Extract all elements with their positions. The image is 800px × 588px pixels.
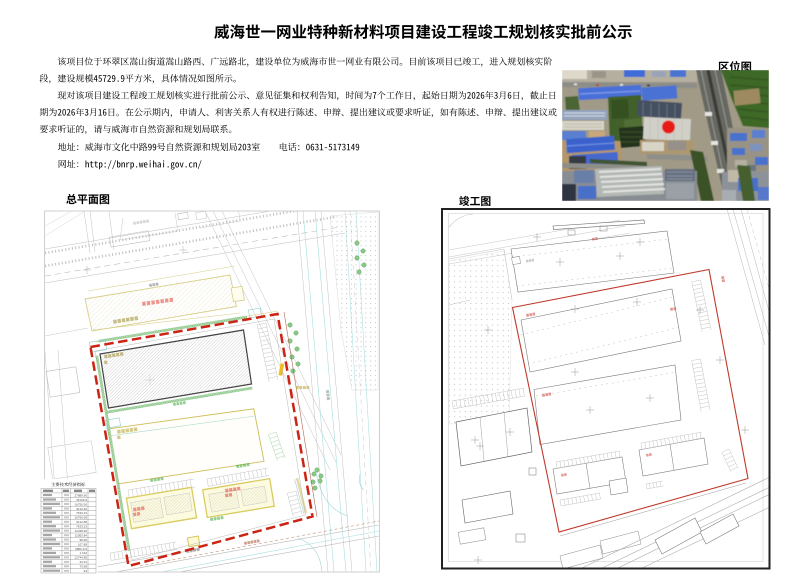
svg-text:98.96: 98.96 xyxy=(79,538,87,542)
svg-text:9112.60: 9112.60 xyxy=(76,507,87,511)
svg-text:94: 94 xyxy=(84,569,88,573)
svg-text:12744.88: 12744.88 xyxy=(74,556,87,560)
svg-text:45726.9: 45726.9 xyxy=(76,498,87,502)
svg-text:43.31: 43.31 xyxy=(79,560,87,564)
svg-text:27889.90: 27889.90 xyxy=(74,493,87,497)
svg-text:73.98: 73.98 xyxy=(79,565,87,569)
svg-text:16756.58: 16756.58 xyxy=(74,516,87,520)
svg-text:11953.84: 11953.84 xyxy=(75,533,88,537)
svg-text:107.88: 107.88 xyxy=(78,542,88,546)
svg-text:7633.23: 7633.23 xyxy=(76,525,87,529)
svg-text:7633.23: 7633.23 xyxy=(76,511,87,515)
svg-text:16756.56: 16756.56 xyxy=(74,502,87,506)
svg-text:1.192: 1.192 xyxy=(79,551,87,555)
svg-text:12348.96: 12348.96 xyxy=(74,529,87,533)
svg-text:9112.88: 9112.88 xyxy=(76,520,87,524)
svg-text:9866.1%: 9866.1% xyxy=(75,547,87,551)
